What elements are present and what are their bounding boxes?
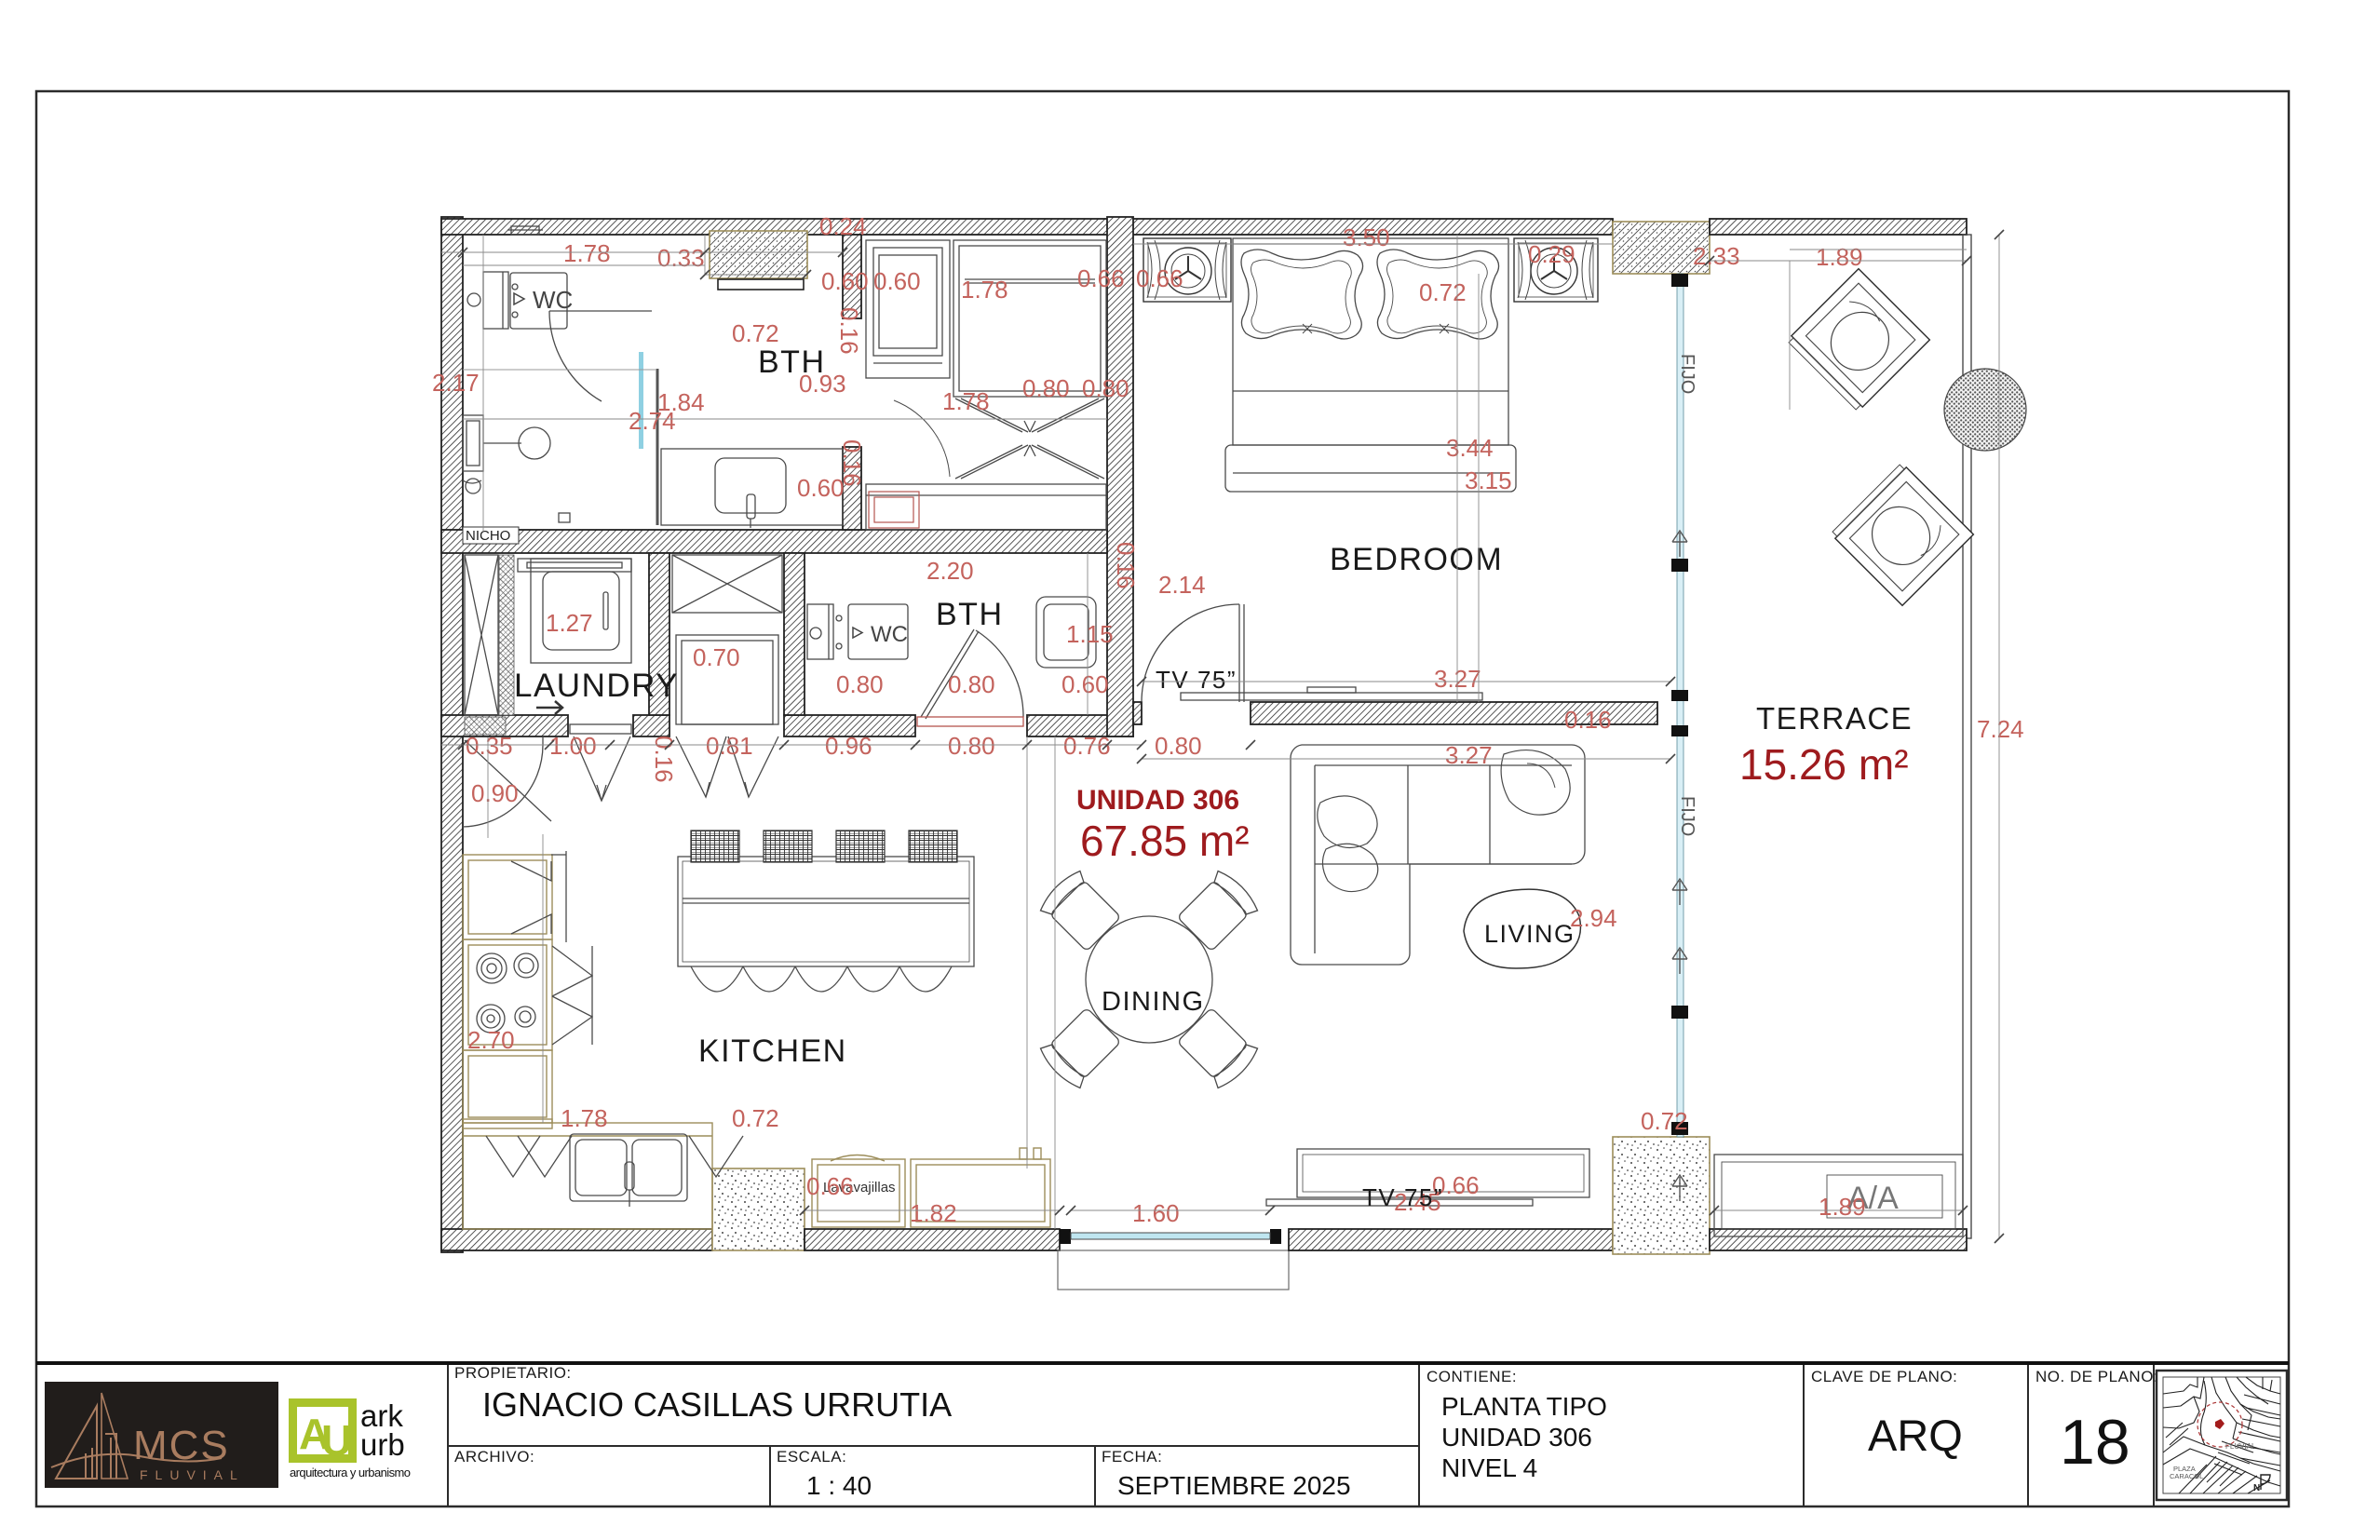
- svg-text:0.80: 0.80: [1022, 374, 1070, 402]
- svg-text:0.80: 0.80: [948, 732, 995, 760]
- svg-text:WC: WC: [871, 622, 908, 647]
- svg-text:arquitectura y urbanismo: arquitectura y urbanismo: [290, 1466, 411, 1479]
- svg-text:N: N: [2253, 1483, 2260, 1493]
- svg-text:UNIDAD 306: UNIDAD 306: [1076, 785, 1239, 816]
- svg-text:3.27: 3.27: [1445, 741, 1493, 769]
- svg-text:0.60: 0.60: [873, 267, 921, 295]
- svg-text:CLAVE DE PLANO:: CLAVE DE PLANO:: [1811, 1368, 1957, 1385]
- svg-text:0.24: 0.24: [819, 212, 867, 240]
- svg-text:0.33: 0.33: [657, 244, 705, 272]
- svg-text:1.78: 1.78: [561, 1104, 608, 1132]
- svg-text:2.33: 2.33: [1693, 242, 1740, 270]
- svg-text:2.74: 2.74: [629, 407, 676, 435]
- svg-text:DINING: DINING: [1102, 987, 1205, 1017]
- svg-text:0.16: 0.16: [1112, 542, 1140, 589]
- svg-text:0.60: 0.60: [821, 267, 869, 295]
- svg-text:BTH: BTH: [936, 597, 1004, 632]
- svg-text:1.89: 1.89: [1819, 1193, 1866, 1221]
- svg-text:3.44: 3.44: [1446, 434, 1494, 462]
- svg-text:1.78: 1.78: [563, 239, 611, 267]
- svg-text:1.82: 1.82: [910, 1199, 957, 1227]
- svg-text:1.00: 1.00: [549, 732, 597, 760]
- svg-text:KITCHEN: KITCHEN: [698, 1033, 847, 1069]
- svg-text:FLUVIAL: FLUVIAL: [140, 1467, 245, 1482]
- svg-text:0.96: 0.96: [825, 732, 872, 760]
- svg-text:0.76: 0.76: [1063, 732, 1111, 760]
- svg-text:1.27: 1.27: [546, 609, 593, 637]
- svg-text:1.78: 1.78: [961, 276, 1008, 304]
- svg-text:SEPTIEMBRE 2025: SEPTIEMBRE 2025: [1117, 1471, 1351, 1500]
- svg-text:PROPIETARIO:: PROPIETARIO:: [454, 1364, 572, 1382]
- svg-text:NICHO: NICHO: [466, 528, 510, 544]
- svg-text:0.66: 0.66: [806, 1172, 854, 1200]
- svg-text:ARCHIVO:: ARCHIVO:: [454, 1448, 534, 1466]
- svg-text:0.72: 0.72: [732, 1104, 779, 1132]
- svg-text:FLUVIAL: FLUVIAL: [2225, 1442, 2256, 1451]
- svg-text:15.26 m²: 15.26 m²: [1739, 740, 1909, 789]
- svg-text:FECHA:: FECHA:: [1102, 1448, 1162, 1466]
- svg-text:2.14: 2.14: [1158, 571, 1206, 599]
- svg-text:1.78: 1.78: [942, 387, 990, 415]
- svg-text:0.29: 0.29: [1528, 240, 1575, 268]
- svg-text:FIJO: FIJO: [1677, 354, 1697, 394]
- svg-text:3.15: 3.15: [1465, 466, 1512, 494]
- svg-text:0.35: 0.35: [466, 732, 513, 760]
- svg-text:0.81: 0.81: [706, 732, 753, 760]
- svg-text:0.80: 0.80: [836, 670, 884, 698]
- svg-text:0.72: 0.72: [732, 319, 779, 347]
- svg-text:1 : 40: 1 : 40: [806, 1471, 872, 1500]
- svg-text:2.17: 2.17: [432, 369, 480, 397]
- svg-text:NIVEL 4: NIVEL 4: [1441, 1453, 1537, 1482]
- svg-text:2.20: 2.20: [926, 557, 974, 585]
- svg-text:IGNACIO CASILLAS URRUTIA: IGNACIO CASILLAS URRUTIA: [482, 1385, 952, 1424]
- svg-text:2.94: 2.94: [1570, 904, 1617, 932]
- svg-text:CONTIENE:: CONTIENE:: [1427, 1368, 1517, 1385]
- svg-text:MCS: MCS: [133, 1423, 230, 1468]
- svg-text:TV 75”: TV 75”: [1156, 666, 1237, 694]
- svg-text:1.60: 1.60: [1132, 1199, 1180, 1227]
- svg-text:3.50: 3.50: [1343, 223, 1390, 251]
- svg-text:0.16: 0.16: [1564, 706, 1612, 734]
- svg-text:UNIDAD 306: UNIDAD 306: [1441, 1423, 1592, 1452]
- svg-text:BEDROOM: BEDROOM: [1330, 542, 1503, 577]
- svg-text:0.16: 0.16: [650, 736, 678, 783]
- svg-text:0.80: 0.80: [948, 670, 995, 698]
- svg-text:WC: WC: [533, 286, 573, 314]
- svg-text:U: U: [321, 1416, 352, 1465]
- svg-text:0.16: 0.16: [835, 307, 863, 355]
- svg-text:CARACOL: CARACOL: [2170, 1472, 2203, 1480]
- svg-text:TV 75”: TV 75”: [1362, 1183, 1443, 1211]
- svg-text:LAUNDRY: LAUNDRY: [514, 668, 679, 704]
- svg-text:FIJO: FIJO: [1677, 796, 1697, 836]
- svg-text:2.70: 2.70: [467, 1026, 515, 1054]
- svg-text:0.80: 0.80: [1155, 732, 1202, 760]
- svg-text:7.24: 7.24: [1977, 715, 2024, 743]
- svg-text:urb: urb: [360, 1427, 405, 1462]
- svg-text:0.80: 0.80: [1082, 374, 1129, 402]
- svg-text:0.60: 0.60: [797, 474, 845, 502]
- svg-text:67.85 m²: 67.85 m²: [1080, 817, 1250, 865]
- svg-text:ESCALA:: ESCALA:: [777, 1448, 846, 1466]
- svg-text:0.66: 0.66: [1136, 264, 1183, 292]
- svg-text:1.89: 1.89: [1816, 243, 1863, 271]
- svg-text:0.60: 0.60: [1062, 670, 1109, 698]
- svg-text:NO. DE PLANO:: NO. DE PLANO:: [2035, 1368, 2158, 1385]
- svg-text:0.93: 0.93: [799, 370, 846, 398]
- svg-text:0.70: 0.70: [693, 643, 740, 671]
- svg-text:0.90: 0.90: [471, 779, 519, 807]
- svg-text:18: 18: [2060, 1407, 2130, 1478]
- svg-text:0.66: 0.66: [1077, 264, 1125, 292]
- svg-text:TERRACE: TERRACE: [1756, 701, 1913, 736]
- svg-text:0.72: 0.72: [1419, 278, 1467, 306]
- svg-text:0.72: 0.72: [1641, 1107, 1688, 1135]
- svg-text:LIVING: LIVING: [1484, 920, 1575, 948]
- svg-text:PLANTA TIPO: PLANTA TIPO: [1441, 1392, 1607, 1421]
- svg-text:1.15: 1.15: [1066, 620, 1114, 648]
- svg-text:ARQ: ARQ: [1868, 1411, 1963, 1460]
